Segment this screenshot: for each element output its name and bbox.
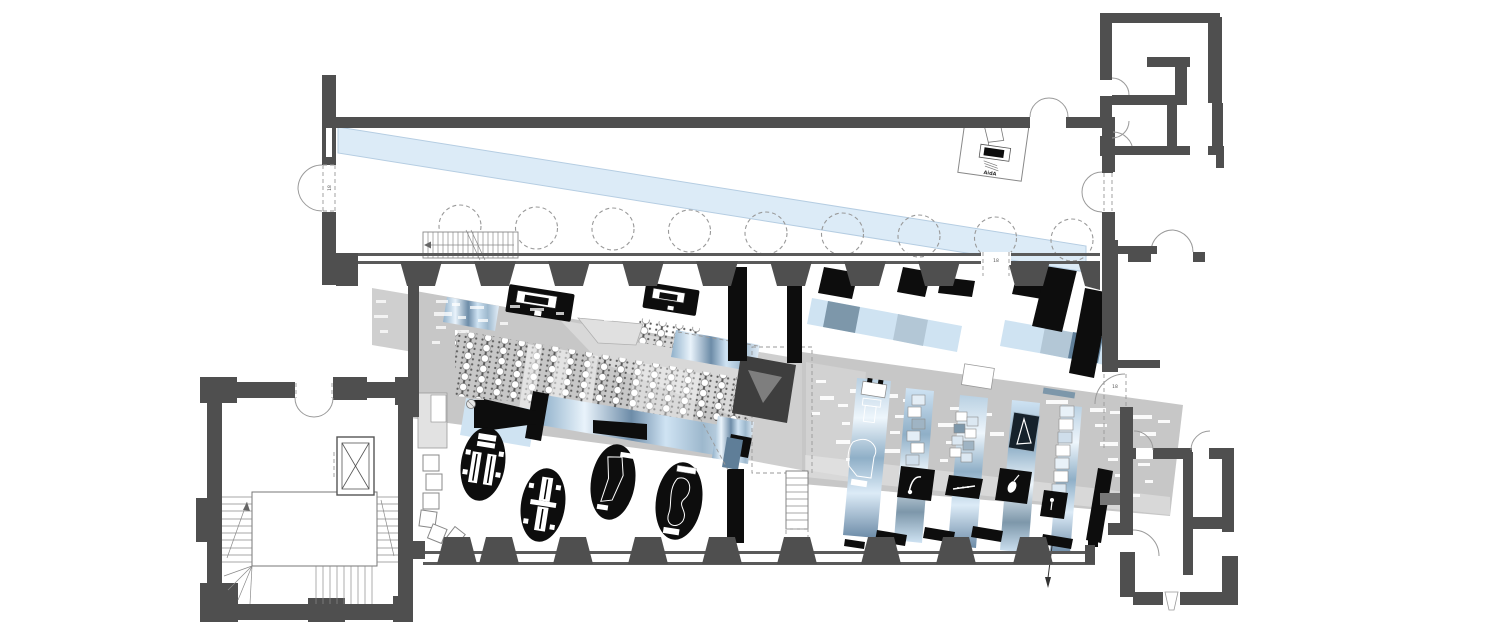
- arcade-piers: [400, 261, 1100, 290]
- north-wall: [336, 117, 1102, 128]
- route-arrowhead: [1045, 577, 1051, 588]
- exhibit-block: [1088, 533, 1098, 547]
- door-arc: [1082, 192, 1102, 212]
- south-piers: [437, 537, 1053, 564]
- walk-arrow: [243, 502, 250, 511]
- carpet-west-wedge: [372, 288, 413, 352]
- floor-opening: [961, 364, 994, 389]
- west-wall: [322, 212, 336, 274]
- door-symbol: [1165, 592, 1178, 610]
- listening-pod: [515, 465, 570, 545]
- door-arc: [295, 398, 314, 417]
- door-arc: [298, 189, 322, 211]
- door-arc: [1030, 98, 1049, 117]
- door-arc: [314, 398, 333, 417]
- floor-plan-canvas: AidA 18: [0, 0, 1500, 632]
- door-arc: [298, 165, 322, 189]
- stair-landing: [252, 492, 377, 566]
- wall-stub: [1100, 493, 1122, 505]
- wall-niche-inner: [431, 395, 446, 422]
- exhibit-bar: [727, 469, 744, 543]
- saxophone-icon: [908, 490, 912, 494]
- door-number: 18: [327, 185, 333, 191]
- listening-pod: [585, 441, 640, 523]
- north-door-gap: [1030, 117, 1066, 128]
- partition: [1183, 517, 1234, 529]
- door-arc: [1112, 78, 1129, 95]
- wall-stub: [1118, 246, 1157, 254]
- partition: [1167, 105, 1177, 152]
- stair-tower: [196, 377, 425, 622]
- entrance-west: 18: [298, 165, 335, 211]
- tower-link-wall: [398, 541, 425, 559]
- door-arc: [1082, 172, 1102, 192]
- door-number: 18: [1112, 384, 1118, 390]
- walk-line: [381, 500, 394, 556]
- elevator-icon: [334, 437, 374, 495]
- corridor-door-gap: [1151, 252, 1193, 262]
- visitor-icon: [1050, 498, 1054, 502]
- partition: [1112, 95, 1187, 105]
- door-arc: [1191, 431, 1210, 450]
- reception-desk: AidA: [958, 119, 1029, 181]
- loose-chairs: [419, 455, 465, 545]
- door-number: 18: [993, 258, 999, 264]
- north-hall: AidA: [338, 119, 1093, 272]
- floor-plan-drawing: AidA 18: [0, 0, 1500, 632]
- gallery-east-wall: [1102, 240, 1118, 372]
- tower-door-gap: [295, 382, 333, 398]
- door-arc: [1133, 530, 1159, 556]
- west-window-slot: [326, 128, 332, 157]
- partition: [1183, 452, 1193, 517]
- south-wall: [423, 537, 1095, 565]
- display-counter: [642, 282, 699, 316]
- annex-northeast: [1100, 13, 1224, 173]
- door-arc: [1173, 230, 1193, 252]
- walk-line: [227, 502, 247, 558]
- wall-band-segment: [823, 301, 860, 333]
- wall-stub: [1118, 360, 1160, 368]
- partition: [1183, 529, 1193, 575]
- door-arc: [1049, 98, 1068, 117]
- listening-pod: [650, 459, 708, 543]
